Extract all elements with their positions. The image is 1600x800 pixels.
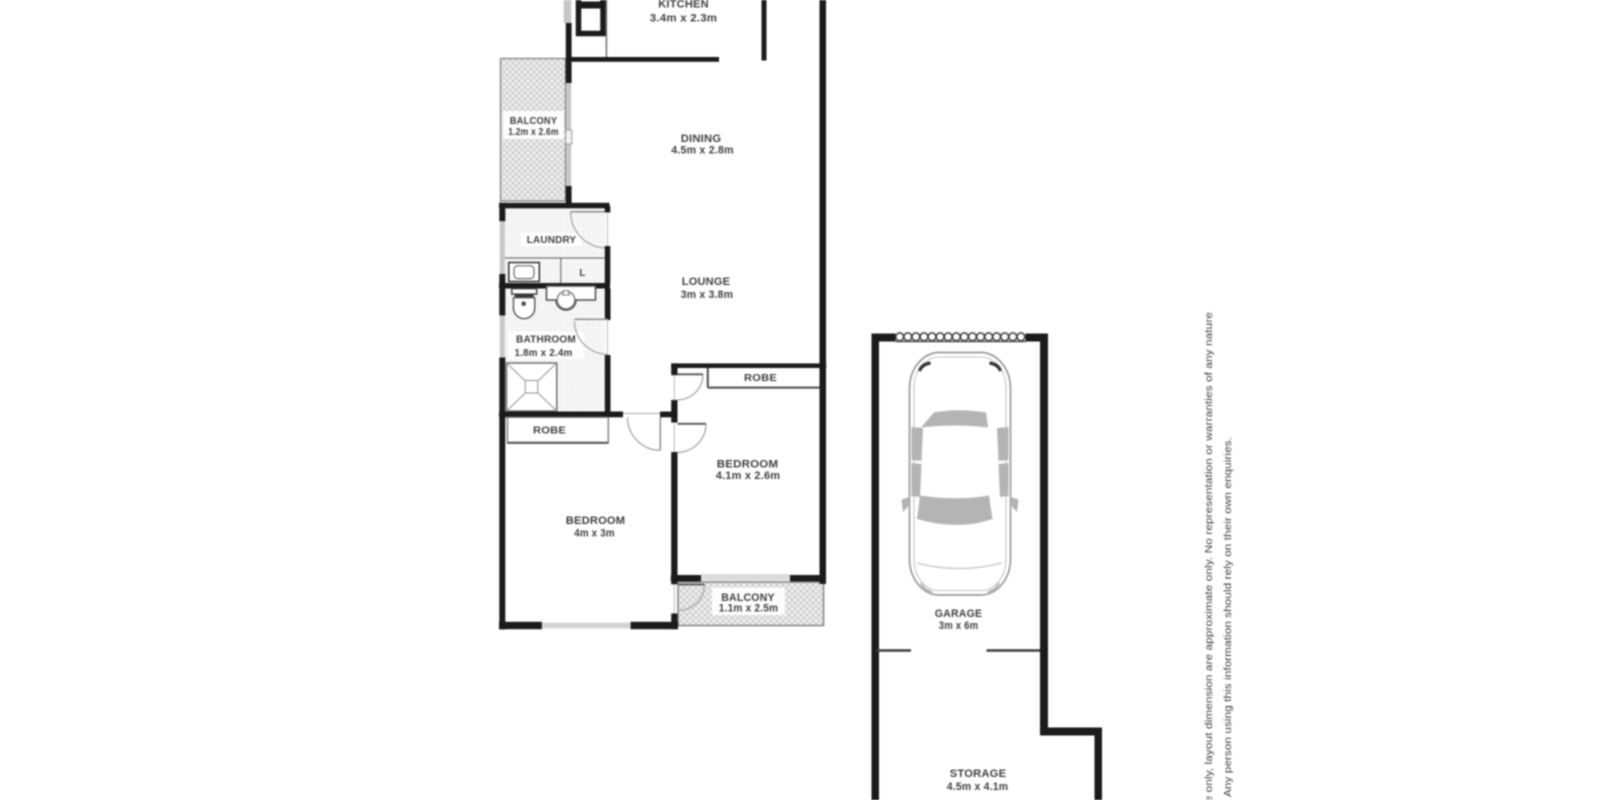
svg-text:1.2m x 2.6m: 1.2m x 2.6m — [508, 127, 559, 138]
svg-text:4.5m x 2.8m: 4.5m x 2.8m — [671, 145, 734, 157]
svg-text:LAUNDRY: LAUNDRY — [527, 235, 577, 246]
svg-text:KITCHEN: KITCHEN — [658, 0, 709, 11]
svg-text:4.1m x 2.6m: 4.1m x 2.6m — [716, 470, 781, 482]
svg-text:L: L — [579, 268, 585, 279]
svg-text:3m x 3.8m: 3m x 3.8m — [681, 289, 734, 301]
svg-text:ROBE: ROBE — [744, 373, 777, 384]
svg-text:GARAGE: GARAGE — [935, 608, 983, 620]
svg-text:ROBE: ROBE — [533, 426, 566, 437]
svg-text:BEDROOM: BEDROOM — [566, 515, 626, 527]
svg-text:BATHROOM: BATHROOM — [516, 335, 576, 346]
svg-text:BALCONY: BALCONY — [510, 116, 558, 127]
svg-text:DINING: DINING — [681, 133, 722, 145]
svg-text:a guide only, layout dimension: a guide only, layout dimension are appro… — [1204, 312, 1215, 800]
svg-text:LOUNGE: LOUNGE — [682, 276, 731, 288]
svg-text:STORAGE: STORAGE — [950, 768, 1007, 780]
svg-text:1.8m x 2.4m: 1.8m x 2.4m — [515, 348, 573, 359]
svg-text:4.5m x 4.1m: 4.5m x 4.1m — [947, 781, 1009, 793]
svg-text:Any person using this informat: Any person using this information should… — [1223, 437, 1234, 797]
svg-text:1.1m x 2.5m: 1.1m x 2.5m — [719, 602, 779, 614]
svg-text:BEDROOM: BEDROOM — [717, 459, 779, 471]
svg-text:3m x 6m: 3m x 6m — [939, 620, 979, 632]
svg-text:4m x 3m: 4m x 3m — [574, 527, 615, 539]
svg-text:3.4m x 2.3m: 3.4m x 2.3m — [650, 13, 718, 25]
